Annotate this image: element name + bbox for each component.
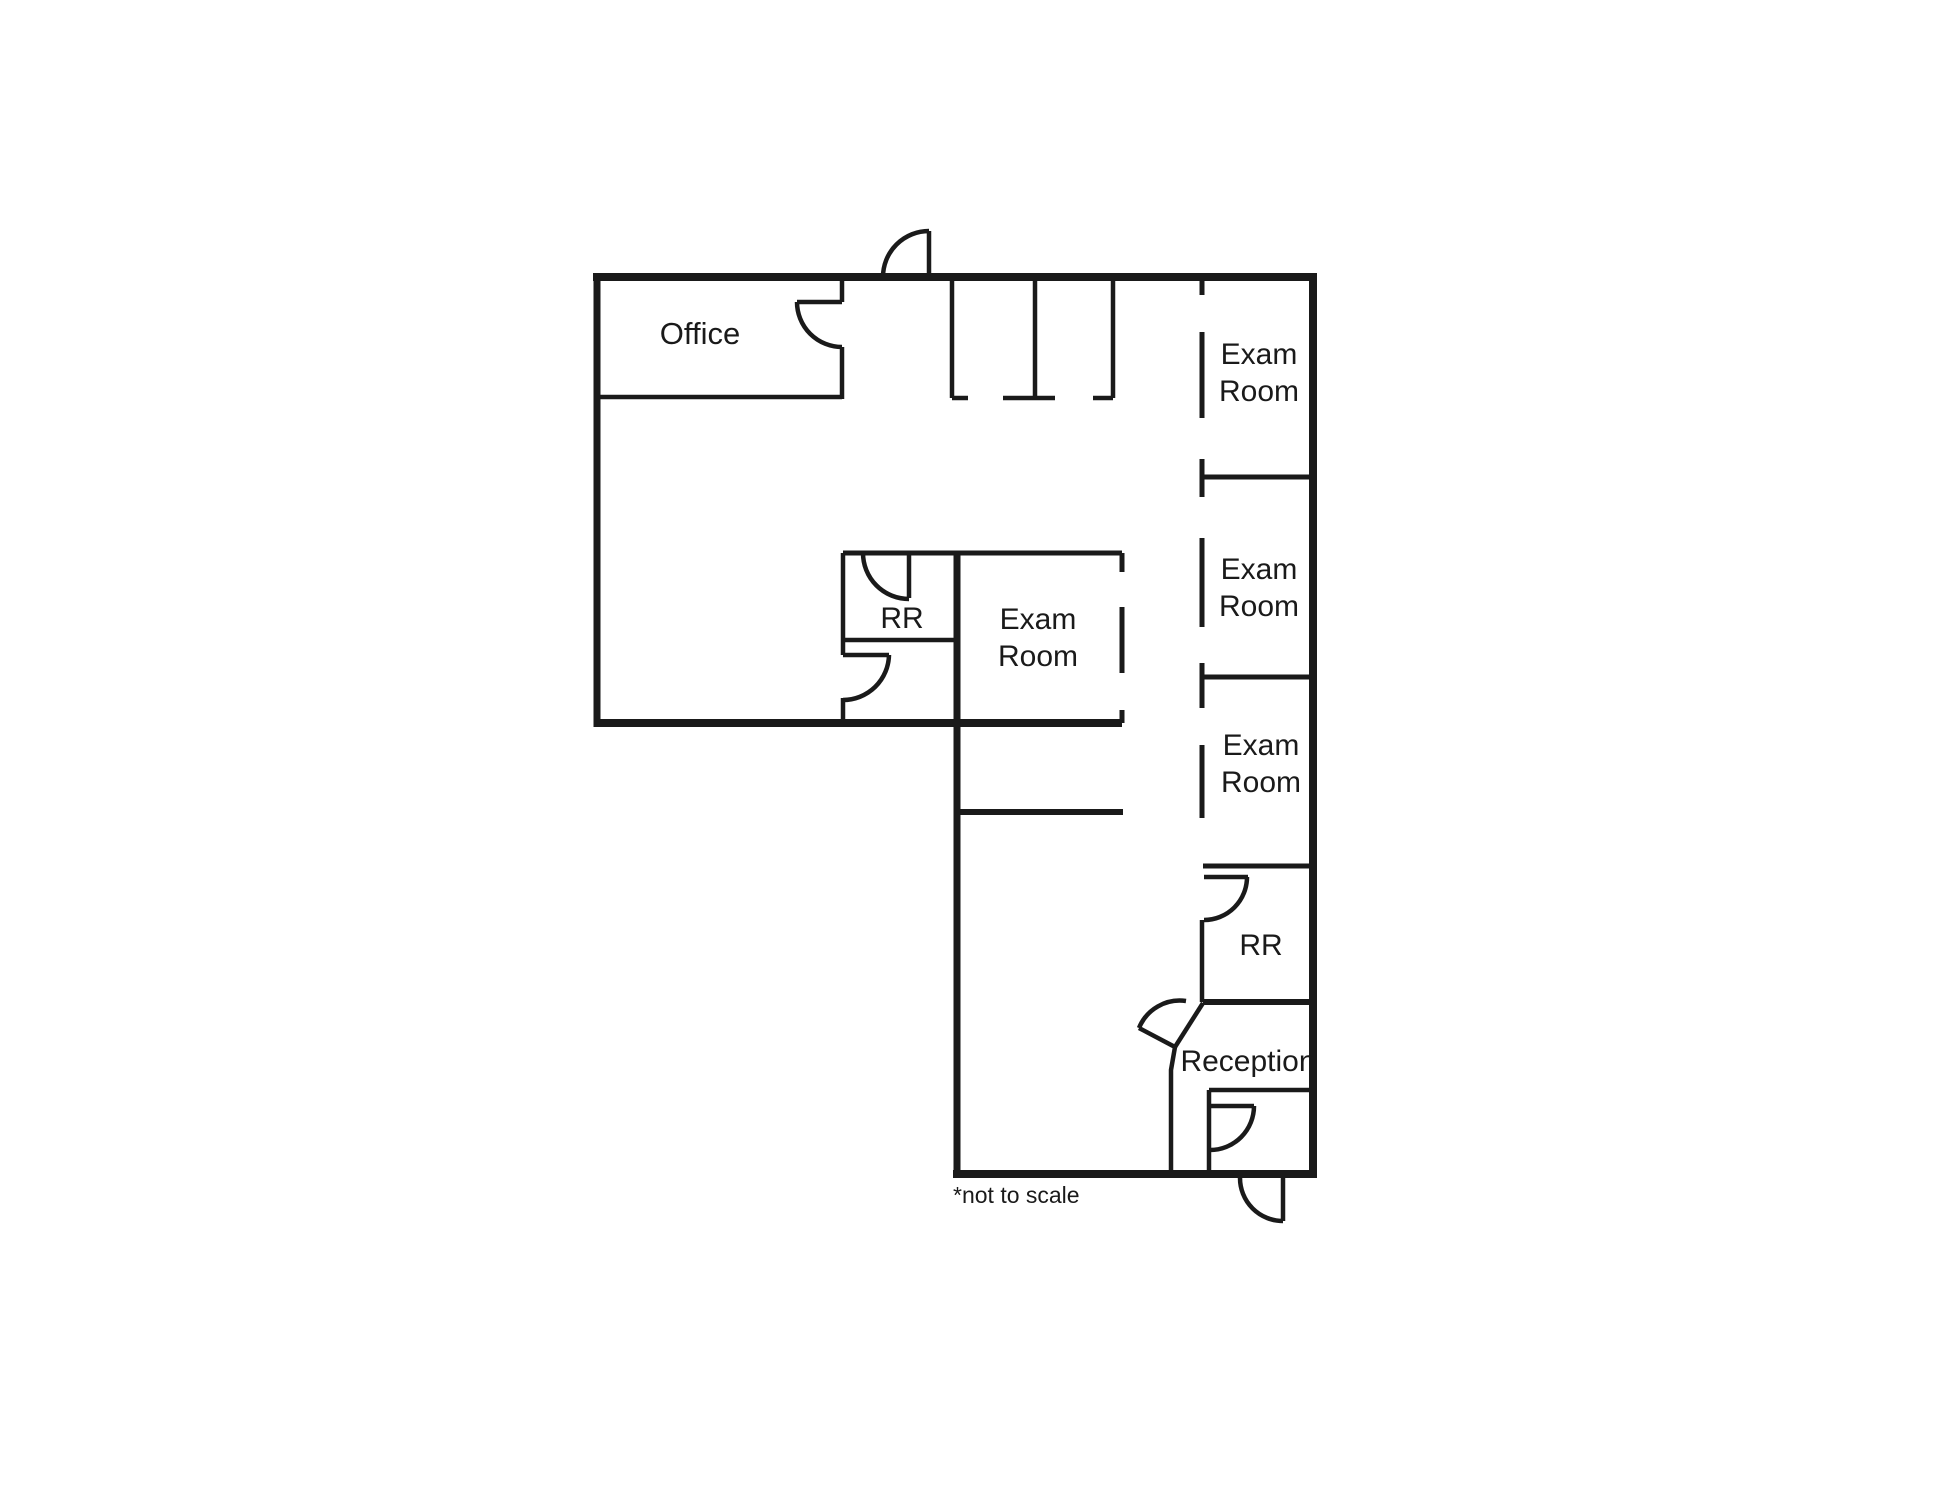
restroom-lower-door: [1204, 877, 1248, 920]
top-entry-door-swing-arc: [883, 231, 929, 277]
exam-room-mid-label: Exam Room: [973, 601, 1103, 675]
reception-door-leaf: [1175, 1003, 1203, 1047]
reception-door-swing-radius: [1139, 1028, 1175, 1047]
office-door-swing-arc: [797, 302, 842, 347]
restroom-lower-label: RR: [1221, 927, 1301, 964]
reception-door-swing-arc: [1139, 1001, 1186, 1028]
exam-room-3-label: Exam Room: [1196, 727, 1326, 801]
bottom-entrance-door-swing-arc: [1240, 1178, 1283, 1221]
restroom-mid-door-swing-arc: [863, 553, 909, 599]
exam-room-2-label: Exam Room: [1194, 551, 1324, 625]
office-label: Office: [620, 315, 780, 352]
restroom-mid-label: RR: [862, 600, 942, 637]
office-door: [797, 302, 842, 347]
reception-door: [1139, 1001, 1203, 1047]
inner-room-door: [1210, 1106, 1254, 1150]
bottom-entrance-door: [1240, 1178, 1283, 1221]
reception-inner-room: [1209, 1090, 1313, 1174]
cubicle-partitions: [952, 281, 1113, 398]
top-entry-door: [883, 231, 929, 277]
scale-note: *not to scale: [953, 1182, 1080, 1208]
alcove-door-swing-arc: [843, 655, 889, 700]
restroom-lower-door-swing-arc: [1204, 877, 1247, 920]
inner-room-door-swing-arc: [1210, 1106, 1254, 1150]
floor-plan: Office Exam Room Exam Room Exam Room Exa…: [0, 0, 1941, 1500]
exam-room-1-label: Exam Room: [1194, 336, 1324, 410]
restroom-mid-door: [863, 553, 909, 599]
floor-plan-drawing: [0, 0, 1941, 1500]
reception-label: Reception: [1173, 1043, 1323, 1080]
reception-area: [1139, 1001, 1313, 1221]
alcove-door: [843, 655, 889, 700]
